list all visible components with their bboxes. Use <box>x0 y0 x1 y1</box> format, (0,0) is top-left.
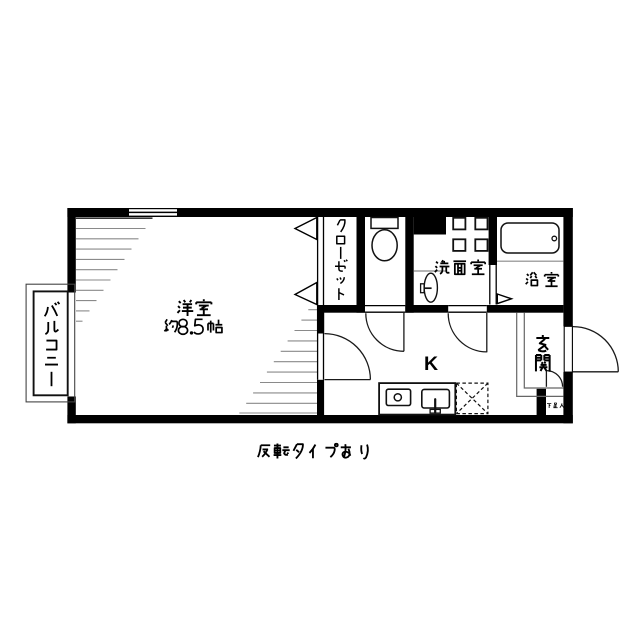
svg-text:K: K <box>424 353 438 375</box>
